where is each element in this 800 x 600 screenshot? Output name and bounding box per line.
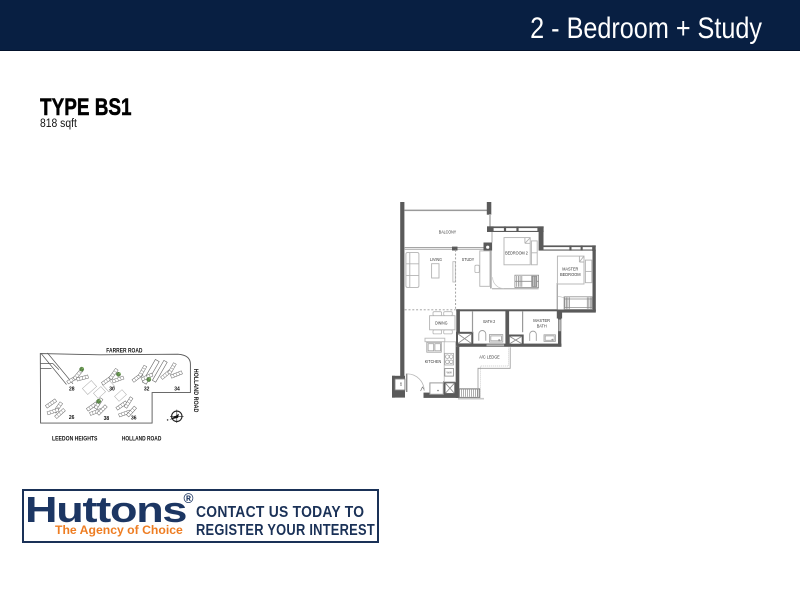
svg-text:FARRER ROAD: FARRER ROAD	[106, 349, 143, 355]
svg-text:28: 28	[69, 387, 75, 393]
svg-text:DB: DB	[399, 382, 403, 386]
svg-text:BEDROOM 2: BEDROOM 2	[505, 250, 528, 255]
svg-text:MASTER: MASTER	[533, 318, 550, 323]
svg-text:KITCHEN: KITCHEN	[425, 359, 442, 364]
svg-text:HOLLAND ROAD: HOLLAND ROAD	[122, 436, 162, 443]
svg-text:DINING: DINING	[435, 320, 448, 325]
svg-text:30: 30	[109, 387, 115, 393]
svg-text:36: 36	[131, 416, 137, 422]
svg-text:BATH: BATH	[537, 323, 547, 328]
svg-text:LEEDON HEIGHTS: LEEDON HEIGHTS	[52, 436, 98, 443]
svg-text:STUDY: STUDY	[462, 257, 475, 262]
svg-text:MASTER: MASTER	[562, 267, 579, 272]
svg-text:WW: WW	[446, 371, 452, 375]
svg-text:26: 26	[69, 415, 75, 421]
svg-text:A/C LEDGE: A/C LEDGE	[479, 354, 500, 359]
svg-text:HOLLAND ROAD: HOLLAND ROAD	[192, 369, 198, 413]
svg-text:BEDROOM: BEDROOM	[560, 272, 581, 277]
svg-text:32: 32	[144, 387, 150, 393]
svg-text:BATH 2: BATH 2	[483, 319, 495, 324]
svg-text:38: 38	[104, 416, 110, 422]
svg-text:BALCONY: BALCONY	[439, 230, 457, 235]
svg-text:LIVING: LIVING	[430, 257, 442, 262]
svg-text:34: 34	[174, 387, 180, 393]
